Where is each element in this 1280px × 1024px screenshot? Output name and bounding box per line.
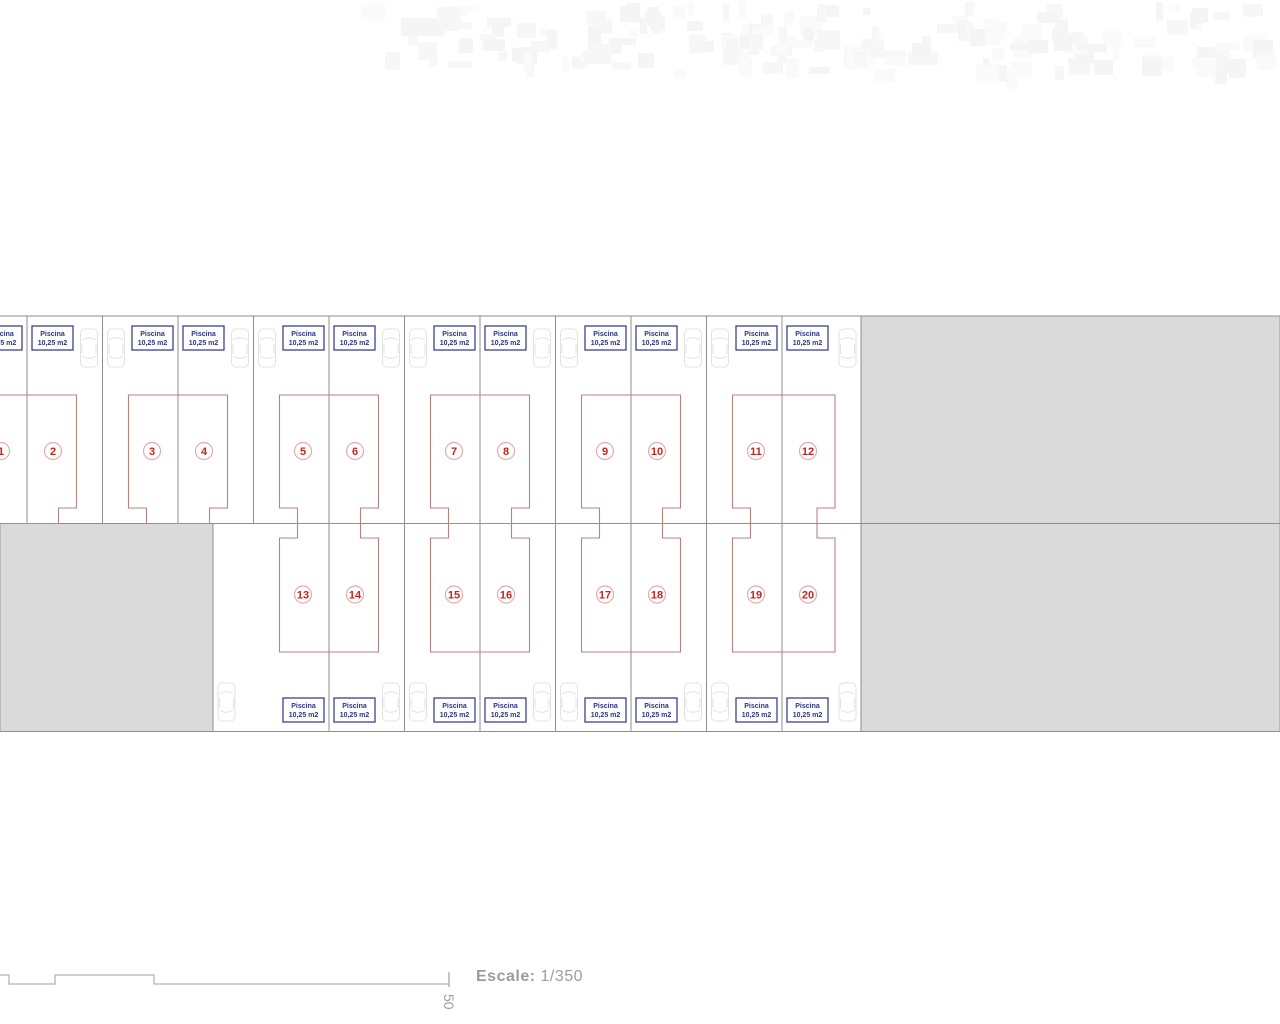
car-icon: [410, 683, 427, 721]
pool-label-line1: Piscina: [744, 703, 769, 710]
pool-box: Piscina10,25 m2: [636, 698, 677, 722]
plot-number-badge: 18: [649, 586, 666, 603]
pool-box: Piscina10,25 m2: [334, 698, 375, 722]
pool-box: Piscina10,25 m2: [585, 326, 626, 350]
pool-label-line1: Piscina: [493, 331, 518, 338]
pool-label-line2: 10,25 m2: [742, 712, 772, 719]
pool-box: Piscina10,25 m2: [787, 698, 828, 722]
car-icon: [712, 329, 729, 367]
scale-bar-line: [0, 975, 449, 984]
plot-number-badge: 11: [748, 443, 765, 460]
plot-number: 10: [651, 446, 663, 458]
pool-box: Piscina10,25 m2: [434, 326, 475, 350]
pool-label-line1: Piscina: [795, 331, 820, 338]
pool-box: Piscina10,25 m2: [334, 326, 375, 350]
car-icon: [534, 329, 551, 367]
pool-label-line1: Piscina: [493, 703, 518, 710]
car-icon: [685, 683, 702, 721]
pool-label-line2: 10,25 m2: [440, 340, 470, 347]
car-icon: [561, 329, 578, 367]
car-icon: [839, 683, 856, 721]
pool-label-line1: Piscina: [442, 331, 467, 338]
pool-label-line2: 10,25 m2: [591, 340, 621, 347]
scale-tick-label: 50: [441, 994, 457, 1010]
plot-number: 3: [149, 446, 155, 458]
house-footprint: [733, 395, 836, 524]
car-icon: [81, 329, 98, 367]
plot-number-badge: 6: [347, 443, 364, 460]
car-icon: [561, 683, 578, 721]
pool-label-line1: Piscina: [191, 331, 216, 338]
pool-label-line1: Piscina: [795, 703, 820, 710]
pool-label-line2: 10,25 m2: [591, 712, 621, 719]
plot-number-badge: 20: [800, 586, 817, 603]
plot-number: 2: [50, 446, 56, 458]
plot-number-badge: 8: [498, 443, 515, 460]
site-plan-page: Piscina10,25 m2Piscina10,25 m2Piscina10,…: [0, 0, 1280, 1024]
pool-box: Piscina10,25 m2: [183, 326, 224, 350]
pool-label-line1: Piscina: [140, 331, 165, 338]
pool-box: Piscina10,25 m2: [485, 326, 526, 350]
car-icon: [534, 683, 551, 721]
plot-number-badge: 13: [295, 586, 312, 603]
pool-label-line1: Piscina: [342, 331, 367, 338]
scale-label: Escale: 1/350: [476, 968, 583, 986]
plot-number-badge: 1: [0, 443, 10, 460]
plot-number: 19: [750, 589, 762, 601]
pool-label-line2: 10,25 m2: [0, 340, 16, 347]
pool-label-line2: 10,25 m2: [793, 712, 823, 719]
car-icon: [108, 329, 125, 367]
plot-number-badge: 19: [748, 586, 765, 603]
pool-box: Piscina10,25 m2: [283, 326, 324, 350]
pool-label-line2: 10,25 m2: [289, 340, 319, 347]
plot-number: 11: [750, 446, 762, 458]
pool-box: Piscina10,25 m2: [283, 698, 324, 722]
pool-box: Piscina10,25 m2: [736, 698, 777, 722]
car-icon: [232, 329, 249, 367]
plot-number: 7: [451, 446, 457, 458]
car-icon: [410, 329, 427, 367]
pool-label-line2: 10,25 m2: [340, 340, 370, 347]
pool-box: Piscina10,25 m2: [485, 698, 526, 722]
plot-number-badge: 16: [498, 586, 515, 603]
pool-label-line1: Piscina: [744, 331, 769, 338]
house-footprint: [733, 524, 836, 653]
pool-box: Piscina10,25 m2: [434, 698, 475, 722]
plot-number-badge: 12: [800, 443, 817, 460]
pool-label-line1: Piscina: [644, 331, 669, 338]
car-icon: [839, 329, 856, 367]
pool-label-line1: Piscina: [442, 703, 467, 710]
scale-label-value: 1/350: [541, 968, 584, 985]
pool-box: Piscina10,25 m2: [32, 326, 73, 350]
plot-number-badge: 14: [347, 586, 364, 603]
site-plan-drawing: Piscina10,25 m2Piscina10,25 m2Piscina10,…: [0, 0, 1280, 1024]
pool-box: Piscina10,25 m2: [0, 326, 22, 350]
car-icon: [685, 329, 702, 367]
house-footprint: [0, 395, 77, 524]
car-icon: [218, 683, 235, 721]
pool-label-line2: 10,25 m2: [38, 340, 68, 347]
pool-label-line1: Piscina: [291, 331, 316, 338]
pool-box: Piscina10,25 m2: [636, 326, 677, 350]
scale-label-title: Escale:: [476, 968, 536, 985]
pool-label-line2: 10,25 m2: [138, 340, 168, 347]
pool-box: Piscina10,25 m2: [787, 326, 828, 350]
pool-box: Piscina10,25 m2: [585, 698, 626, 722]
pool-label-line1: Piscina: [644, 703, 669, 710]
pool-label-line1: Piscina: [0, 331, 14, 338]
plot-number-badge: 3: [144, 443, 161, 460]
plot-number: 14: [349, 589, 362, 601]
plot-number: 1: [0, 446, 4, 458]
plot-number: 15: [448, 589, 460, 601]
plot-number: 16: [500, 589, 512, 601]
pool-box: Piscina10,25 m2: [132, 326, 173, 350]
background-texture: [361, 1, 1276, 90]
pool-label-line2: 10,25 m2: [340, 712, 370, 719]
plot-number-badge: 7: [446, 443, 463, 460]
pool-label-line2: 10,25 m2: [189, 340, 219, 347]
pool-label-line1: Piscina: [593, 331, 618, 338]
plot-number-badge: 17: [597, 586, 614, 603]
plot-number: 6: [352, 446, 358, 458]
pool-label-line2: 10,25 m2: [289, 712, 319, 719]
pool-label-line2: 10,25 m2: [793, 340, 823, 347]
pool-label-line1: Piscina: [291, 703, 316, 710]
common-area-bottom-left: [0, 524, 213, 732]
plot-number-badge: 2: [45, 443, 62, 460]
pool-label-line2: 10,25 m2: [491, 340, 521, 347]
pool-box: Piscina10,25 m2: [736, 326, 777, 350]
plot-number-badge: 9: [597, 443, 614, 460]
plot-number: 12: [802, 446, 814, 458]
plot-number-badge: 15: [446, 586, 463, 603]
pool-label-line2: 10,25 m2: [642, 712, 672, 719]
pool-label-line1: Piscina: [342, 703, 367, 710]
pool-label-line2: 10,25 m2: [491, 712, 521, 719]
car-icon: [712, 683, 729, 721]
plot-number-badge: 5: [295, 443, 312, 460]
pool-label-line2: 10,25 m2: [440, 712, 470, 719]
plot-number: 9: [602, 446, 608, 458]
plot-number: 20: [802, 589, 814, 601]
car-icon: [383, 683, 400, 721]
pool-label-line1: Piscina: [593, 703, 618, 710]
plot-number: 8: [503, 446, 509, 458]
pool-label-line1: Piscina: [40, 331, 65, 338]
plot-number: 5: [300, 446, 306, 458]
pool-label-line2: 10,25 m2: [742, 340, 772, 347]
plot-number: 17: [599, 589, 611, 601]
plot-number: 13: [297, 589, 309, 601]
car-icon: [259, 329, 276, 367]
car-icon: [383, 329, 400, 367]
plot-number-badge: 4: [196, 443, 213, 460]
pool-label-line2: 10,25 m2: [642, 340, 672, 347]
plot-number: 18: [651, 589, 663, 601]
plot-number-badge: 10: [649, 443, 666, 460]
plot-number: 4: [201, 446, 208, 458]
